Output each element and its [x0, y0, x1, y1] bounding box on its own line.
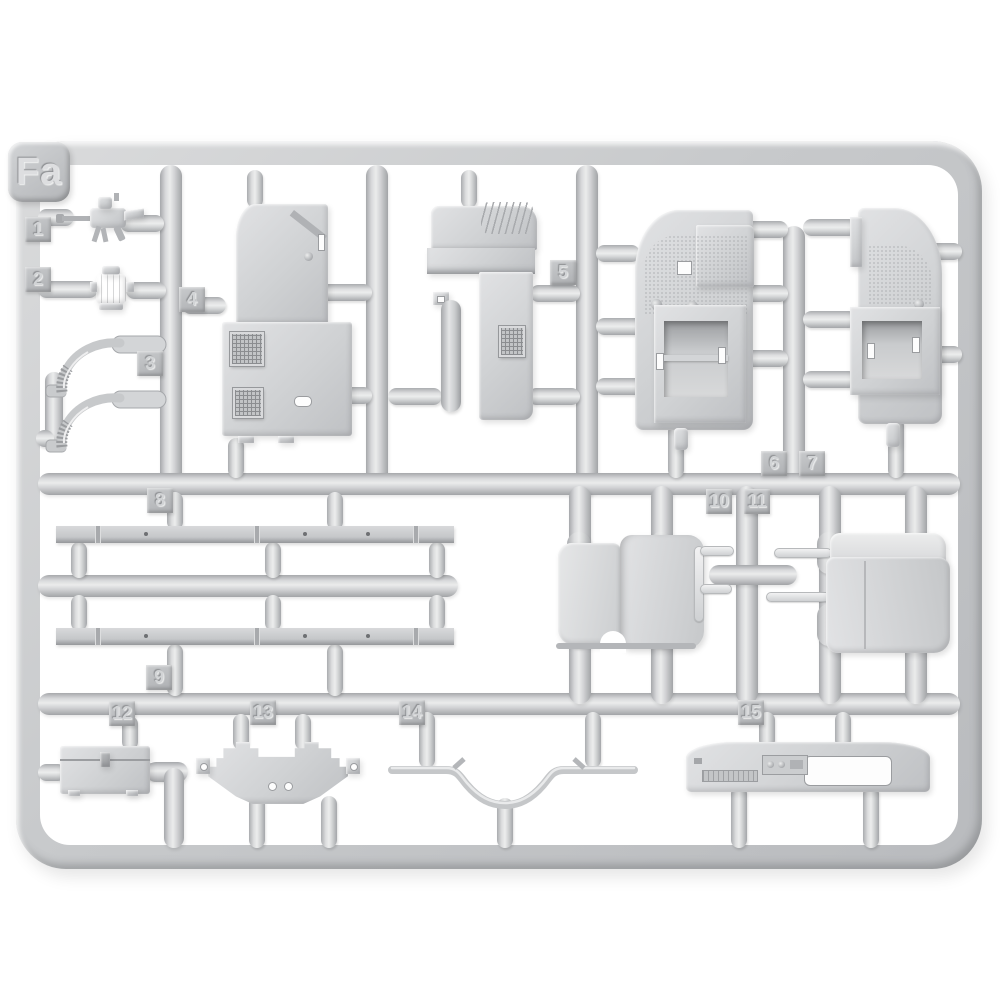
seat-crease	[864, 561, 866, 649]
bracket-hole	[284, 782, 293, 791]
dashboard-detail	[694, 758, 702, 764]
toolbox-foot	[68, 790, 80, 796]
part-4-bulkhead	[220, 200, 370, 445]
gauge-box	[790, 760, 803, 769]
part-2-fitting	[90, 266, 134, 314]
toolbox-clasp	[100, 752, 110, 767]
gun-sight	[114, 193, 119, 201]
bracket-ear	[346, 758, 360, 774]
part-number-tab-12: 12	[109, 701, 135, 726]
runner-cross-bar	[709, 565, 797, 585]
strip-notch	[414, 628, 418, 645]
part-12-tool-box	[60, 746, 150, 796]
dashboard-gauge-cluster	[762, 755, 808, 775]
dashboard-window-cutout	[804, 756, 892, 786]
bulkhead-oval-hole	[294, 396, 312, 407]
part-number-tab-1: 1	[25, 217, 51, 242]
gun-stock	[124, 209, 144, 221]
strip-notch	[255, 628, 259, 645]
part-8-rail-strip	[56, 526, 454, 543]
strip-hole	[303, 634, 307, 638]
part-number-tab-14: 14	[399, 700, 425, 725]
part-number-tab-10: 10	[706, 489, 732, 514]
fitting-nub	[126, 282, 134, 292]
part-number-tab-5: 5	[550, 260, 576, 285]
sprue-gate	[71, 542, 87, 578]
gun-leg	[101, 228, 109, 243]
strip-hole	[366, 532, 370, 536]
bulkhead-upper	[236, 204, 328, 324]
door-flange	[850, 217, 862, 267]
fitting-flange	[99, 303, 123, 310]
sprue-gate	[863, 786, 879, 848]
mesh-grille	[499, 326, 525, 357]
bracket-ear-hole	[200, 763, 208, 771]
strip-notch	[96, 526, 100, 543]
bracket-ear	[196, 758, 210, 774]
door-square-hole	[677, 261, 692, 275]
gun-grip	[113, 225, 126, 242]
part-5-cowl-panel	[425, 200, 585, 425]
box-slot-hole	[912, 337, 920, 353]
part-3-curved-pipes	[40, 330, 170, 455]
bulkhead-foot	[238, 436, 254, 443]
sprue-gate	[265, 595, 281, 631]
part-number-tab-13: 13	[250, 700, 276, 725]
gun-barrel	[62, 216, 92, 221]
strip-hole	[144, 634, 148, 638]
dashboard-louver-plate	[702, 770, 758, 782]
bracket-hole	[268, 782, 277, 791]
mesh-grille	[233, 388, 263, 418]
box-slot-hole	[867, 343, 875, 359]
part-9-rail-strip	[56, 628, 454, 645]
cowl-ridges	[481, 202, 533, 234]
bulkhead-slot-hole	[318, 234, 325, 251]
fitting-nub	[90, 282, 97, 292]
door-tail	[674, 428, 688, 450]
gun-drum	[98, 197, 112, 209]
sprue-code-tab: Fa	[8, 142, 70, 202]
sprue-gate	[429, 595, 445, 631]
part-1-machine-gun	[56, 192, 166, 248]
sprue-gate	[71, 595, 87, 631]
part-number-tab-4: 4	[179, 287, 205, 312]
seat-frame-tube	[766, 592, 832, 602]
part-13-bracket-plate	[208, 742, 348, 804]
bracket-body	[208, 742, 348, 804]
cowl-mid-band	[427, 248, 535, 274]
sprue-photo: Fa 1 2 3 4 5 6 7 8 9 10 11 12 13 14 15	[0, 0, 1000, 1000]
part-number-tab-11: 11	[744, 489, 770, 514]
strip-hole	[144, 532, 148, 536]
part-number-tab-8: 8	[147, 488, 173, 513]
door-tail	[886, 423, 900, 447]
toolbox-foot	[126, 790, 138, 796]
seat-frame-rail	[556, 643, 696, 649]
bulkhead-screw-detail	[304, 252, 313, 261]
elbow-runner-v	[164, 768, 184, 848]
bulkhead-foot	[278, 436, 294, 443]
sprue-gate	[803, 311, 857, 328]
strip-notch	[255, 526, 259, 543]
runner-seat-3	[736, 486, 758, 704]
part-6-door-panel	[630, 205, 790, 480]
sprue-gate	[803, 219, 857, 236]
gauge-dial	[778, 761, 785, 768]
sprue-gate	[327, 644, 343, 696]
strip-notch	[96, 628, 100, 645]
box-slot-hole	[656, 353, 664, 370]
sprue-gate	[803, 371, 857, 388]
part-number-tab-3: 3	[137, 351, 163, 376]
part-11-bench-seat	[826, 533, 950, 655]
sprue-gate	[731, 786, 747, 848]
part-number-tab-6: 6	[761, 451, 787, 476]
gauge-dial	[767, 761, 774, 768]
bracket-ear-hole	[350, 763, 358, 771]
seat-cushion	[826, 557, 950, 653]
part-number-tab-7: 7	[799, 451, 825, 476]
part-10-bench-seat	[556, 535, 704, 653]
sprue-gate	[327, 492, 343, 530]
part-number-tab-9: 9	[146, 665, 172, 690]
part-15-dashboard	[686, 742, 930, 794]
runner-horizontal-strips	[38, 575, 458, 597]
box-slot-hole	[718, 347, 726, 364]
seat-frame-tube	[774, 548, 832, 558]
fitting-body	[96, 274, 126, 304]
mesh-grille	[230, 332, 264, 366]
seat-cushion	[620, 535, 704, 649]
seat-notch	[600, 631, 626, 653]
seat-frame-tube	[700, 584, 732, 594]
seat-frame-tube	[700, 546, 734, 556]
part-number-tab-2: 2	[25, 267, 51, 292]
strip-hole	[366, 634, 370, 638]
seat-cushion	[558, 543, 622, 645]
cowl-column	[441, 300, 461, 412]
part-7-door-panel	[850, 203, 962, 475]
strip-hole	[303, 532, 307, 536]
gun-body	[90, 208, 126, 228]
sprue-gate	[429, 542, 445, 578]
sprue-gate	[265, 542, 281, 578]
strip-notch	[414, 526, 418, 543]
part-number-tab-15: 15	[738, 700, 764, 725]
part-14-curved-rod	[388, 752, 638, 847]
